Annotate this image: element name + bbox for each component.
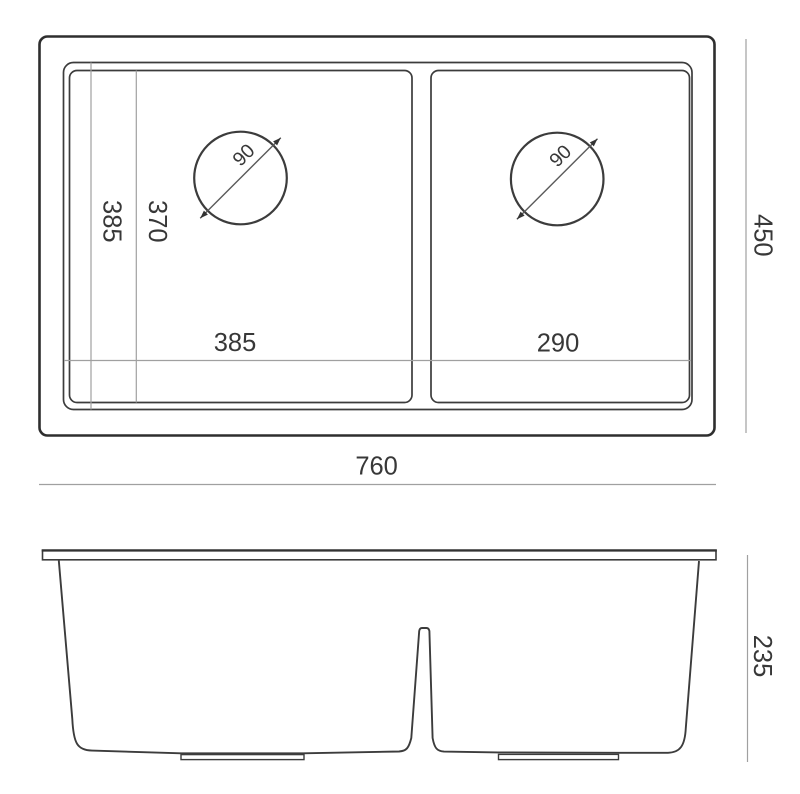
svg-text:290: 290 [537,330,580,358]
svg-text:235: 235 [748,635,776,678]
svg-text:385: 385 [98,200,126,243]
svg-text:450: 450 [749,214,777,257]
svg-text:760: 760 [355,453,398,481]
svg-text:370: 370 [143,200,171,243]
svg-text:385: 385 [214,329,257,357]
